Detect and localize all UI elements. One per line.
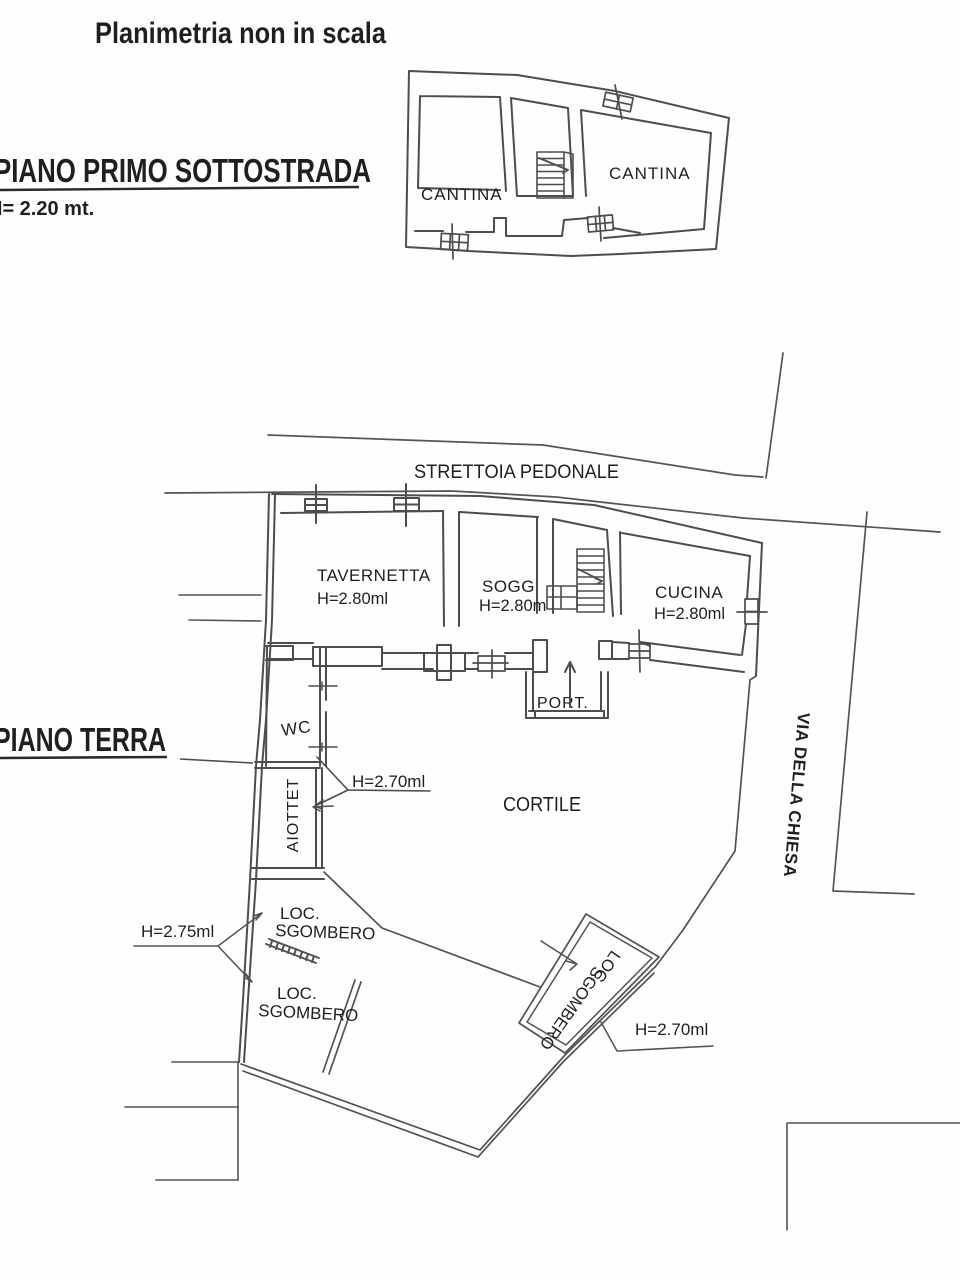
svg-text:PIANO TERRA: PIANO TERRA [0, 721, 166, 758]
svg-text:CANTINA: CANTINA [609, 164, 691, 183]
svg-text:VIA DELLA CHIESA: VIA DELLA CHIESA [780, 712, 813, 878]
svg-text:Planimetria non in scala: Planimetria non in scala [95, 17, 386, 50]
svg-text:TAVERNETTA: TAVERNETTA [317, 566, 431, 585]
svg-text:LOC.: LOC. [280, 904, 320, 923]
svg-text:CORTILE: CORTILE [503, 794, 581, 816]
svg-text:H=2.80ml: H=2.80ml [317, 590, 388, 608]
svg-text:H=2.80m: H=2.80m [479, 597, 546, 615]
svg-text:CANTINA: CANTINA [421, 185, 503, 204]
svg-text:SOGG: SOGG [482, 577, 535, 596]
svg-text:WC: WC [280, 717, 313, 740]
svg-text:H=2.70ml: H=2.70ml [352, 772, 425, 791]
svg-text:H=2.70ml: H=2.70ml [635, 1020, 708, 1039]
svg-text:AIOTTET: AIOTTET [285, 778, 302, 853]
svg-text:PORT.: PORT. [537, 695, 589, 712]
svg-text:SGOMBERO: SGOMBERO [275, 921, 376, 943]
svg-text:SGOMBERO: SGOMBERO [258, 1001, 359, 1025]
svg-text:H=2.80ml: H=2.80ml [654, 605, 725, 623]
svg-text:LOC.: LOC. [277, 984, 317, 1003]
svg-text:CUCINA: CUCINA [655, 583, 723, 602]
svg-text:H=2.75ml: H=2.75ml [141, 922, 214, 941]
svg-text:H= 2.20 mt.: H= 2.20 mt. [0, 198, 94, 220]
svg-text:PIANO PRIMO SOTTOSTRADA: PIANO PRIMO SOTTOSTRADA [0, 152, 371, 189]
svg-text:STRETTOIA PEDONALE: STRETTOIA PEDONALE [414, 462, 619, 483]
